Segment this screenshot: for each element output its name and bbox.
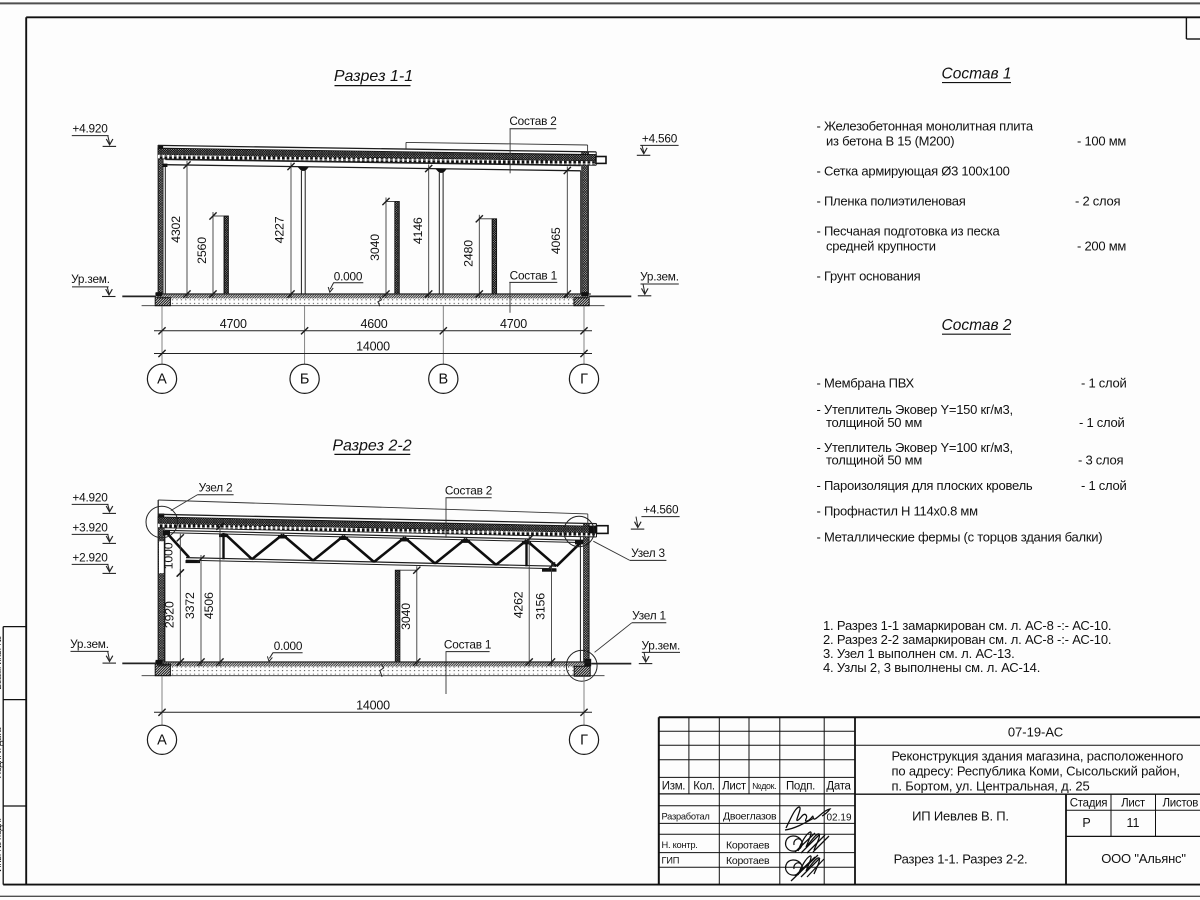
svg-text:- 200 мм: - 200 мм <box>1077 239 1126 254</box>
svg-text:Коротаев: Коротаев <box>726 855 770 867</box>
svg-text:4262: 4262 <box>511 591 525 618</box>
svg-text:- Мембрана ПВХ: - Мембрана ПВХ <box>817 376 915 391</box>
svg-text:Двоеглазов: Двоеглазов <box>723 811 777 823</box>
svg-text:0.000: 0.000 <box>334 270 363 284</box>
svg-text:Состав 2: Состав 2 <box>942 317 1012 334</box>
svg-text:Изм.: Изм. <box>662 780 686 792</box>
svg-text:2480: 2480 <box>462 240 476 267</box>
svg-text:2. Разрез 2-2 замаркирован см.: 2. Разрез 2-2 замаркирован см. л. АС-8 -… <box>823 632 1111 647</box>
svg-text:+4.920: +4.920 <box>72 490 108 504</box>
svg-text:4600: 4600 <box>360 317 387 331</box>
svg-text:Дата: Дата <box>826 780 851 792</box>
svg-text:Разрез 1-1: Разрез 1-1 <box>334 68 413 85</box>
svg-text:Инв. № подл.: Инв. № подл. <box>0 818 3 872</box>
svg-text:1. Разрез 1-1 замаркирован см.: 1. Разрез 1-1 замаркирован см. л. АС-8 -… <box>823 618 1111 633</box>
svg-text:Узел 3: Узел 3 <box>631 546 665 560</box>
svg-text:Г: Г <box>580 733 588 749</box>
svg-text:Коротаев: Коротаев <box>726 840 770 852</box>
svg-text:- 2 слоя: - 2 слоя <box>1075 194 1120 209</box>
svg-text:ООО "Альянс": ООО "Альянс" <box>1101 851 1186 866</box>
svg-text:- Пленка полиэтиленовая: - Пленка полиэтиленовая <box>817 194 966 209</box>
svg-text:Состав 1: Состав 1 <box>510 269 557 283</box>
svg-text:- 1 слой: - 1 слой <box>1081 376 1127 391</box>
svg-text:3040: 3040 <box>368 234 382 261</box>
svg-text:Состав 2: Состав 2 <box>445 484 492 498</box>
svg-text:Кол.: Кол. <box>693 780 715 792</box>
svg-text:Б: Б <box>300 372 310 388</box>
svg-text:из бетона В 15 (М200): из бетона В 15 (М200) <box>826 134 954 149</box>
svg-text:Листов: Листов <box>1163 797 1199 809</box>
svg-text:- Грунт основания: - Грунт основания <box>817 269 921 284</box>
svg-text:3. Узел 1 выполнен см. л. АС-1: 3. Узел 1 выполнен см. л. АС-13. <box>823 646 1015 661</box>
svg-text:- Металлические фермы (с торцо: - Металлические фермы (с торцов здания б… <box>817 530 1103 545</box>
svg-text:4227: 4227 <box>273 216 287 243</box>
svg-text:Разрез 1-1. Разрез 2-2.: Разрез 1-1. Разрез 2-2. <box>894 852 1028 867</box>
svg-text:Узел 2: Узел 2 <box>199 481 233 495</box>
svg-text:Состав 1: Состав 1 <box>942 66 1012 83</box>
svg-text:Узел 1: Узел 1 <box>632 608 666 622</box>
svg-text:толщиной 50 мм: толщиной 50 мм <box>826 452 922 467</box>
svg-text:- Песчаная подготовка из песка: - Песчаная подготовка из песка <box>817 224 1001 239</box>
svg-text:- 3 слоя: - 3 слоя <box>1078 452 1123 467</box>
svg-text:2560: 2560 <box>195 237 209 264</box>
svg-text:Ур.зем.: Ур.зем. <box>70 637 109 651</box>
svg-text:4146: 4146 <box>411 217 425 244</box>
svg-text:+4.560: +4.560 <box>642 131 678 145</box>
svg-text:- 1 слой: - 1 слой <box>1081 478 1127 493</box>
svg-text:1000: 1000 <box>162 542 176 569</box>
svg-text:Взам. инв. №: Взам. инв. № <box>0 636 3 690</box>
svg-text:Реконструкция здания магазина,: Реконструкция здания магазина, расположе… <box>892 749 1184 764</box>
svg-text:А: А <box>157 372 167 388</box>
svg-text:толщиной 50 мм: толщиной 50 мм <box>826 415 922 430</box>
svg-text:Р: Р <box>1082 816 1090 830</box>
svg-text:+2.920: +2.920 <box>72 550 108 564</box>
svg-text:4065: 4065 <box>549 227 563 254</box>
svg-text:ИП Иевлев В. П.: ИП Иевлев В. П. <box>912 808 1009 823</box>
svg-text:3156: 3156 <box>534 593 548 620</box>
svg-text:11: 11 <box>1127 816 1140 830</box>
svg-text:3040: 3040 <box>399 603 413 630</box>
svg-text:14000: 14000 <box>356 698 390 712</box>
svg-text:Подп.: Подп. <box>786 780 815 792</box>
svg-text:- Железобетонная монолитная п: - Железобетонная монолитная плита <box>817 119 1034 134</box>
svg-text:Разработал: Разработал <box>662 811 710 821</box>
svg-text:- Сетка армирующая Ø3 100х100: - Сетка армирующая Ø3 100х100 <box>817 164 1010 179</box>
svg-text:А: А <box>157 733 167 749</box>
svg-text:Стадия: Стадия <box>1070 797 1107 809</box>
svg-text:В: В <box>438 372 448 388</box>
svg-text:п. Бортом, ул. Центральная, д.: п. Бортом, ул. Центральная, д. 25 <box>892 778 1090 793</box>
svg-text:- 1 слой: - 1 слой <box>1079 415 1125 430</box>
svg-text:Подп. и дата: Подп. и дата <box>0 728 3 779</box>
svg-text:+4.560: +4.560 <box>643 503 679 517</box>
svg-text:- Пароизоляция для плоских кро: - Пароизоляция для плоских кровель <box>817 478 1033 493</box>
svg-text:Г: Г <box>580 372 588 388</box>
svg-text:средней крупности: средней крупности <box>826 239 936 254</box>
svg-text:Лист: Лист <box>1121 797 1146 809</box>
svg-text:+4.920: +4.920 <box>72 122 108 136</box>
svg-text:№док.: №док. <box>752 781 776 791</box>
svg-text:- 100 мм: - 100 мм <box>1077 134 1126 149</box>
svg-text:ГИП: ГИП <box>662 856 680 866</box>
svg-text:+3.920: +3.920 <box>72 520 108 534</box>
svg-text:4302: 4302 <box>169 216 183 243</box>
svg-text:3372: 3372 <box>183 592 197 619</box>
svg-text:14000: 14000 <box>356 340 390 354</box>
svg-text:0.000: 0.000 <box>274 639 303 653</box>
svg-text:2920: 2920 <box>163 601 177 628</box>
svg-text:по адресу: Республика Коми, Сы: по адресу: Республика Коми, Сысольский р… <box>892 764 1180 779</box>
svg-text:4. Узлы 2, 3 выполнены см. л.: 4. Узлы 2, 3 выполнены см. л. АС-14. <box>823 660 1040 675</box>
svg-text:- Профнастил Н 114х0.8 мм: - Профнастил Н 114х0.8 мм <box>817 503 979 518</box>
svg-text:Лист: Лист <box>722 780 747 792</box>
svg-text:02.19: 02.19 <box>826 813 851 824</box>
svg-text:4700: 4700 <box>500 317 527 331</box>
svg-text:Состав 1: Состав 1 <box>444 638 491 652</box>
svg-text:Н. контр.: Н. контр. <box>662 840 698 850</box>
svg-text:Ур.зем.: Ур.зем. <box>71 272 110 286</box>
svg-text:Ур.зем.: Ур.зем. <box>640 269 679 283</box>
svg-text:Разрез 2-2: Разрез 2-2 <box>332 437 411 454</box>
svg-text:4700: 4700 <box>220 317 247 331</box>
svg-text:Ур.зем.: Ур.зем. <box>641 638 680 652</box>
svg-text:4506: 4506 <box>202 592 216 619</box>
svg-text:07-19-АС: 07-19-АС <box>1008 725 1063 740</box>
svg-text:Состав 2: Состав 2 <box>509 114 556 128</box>
